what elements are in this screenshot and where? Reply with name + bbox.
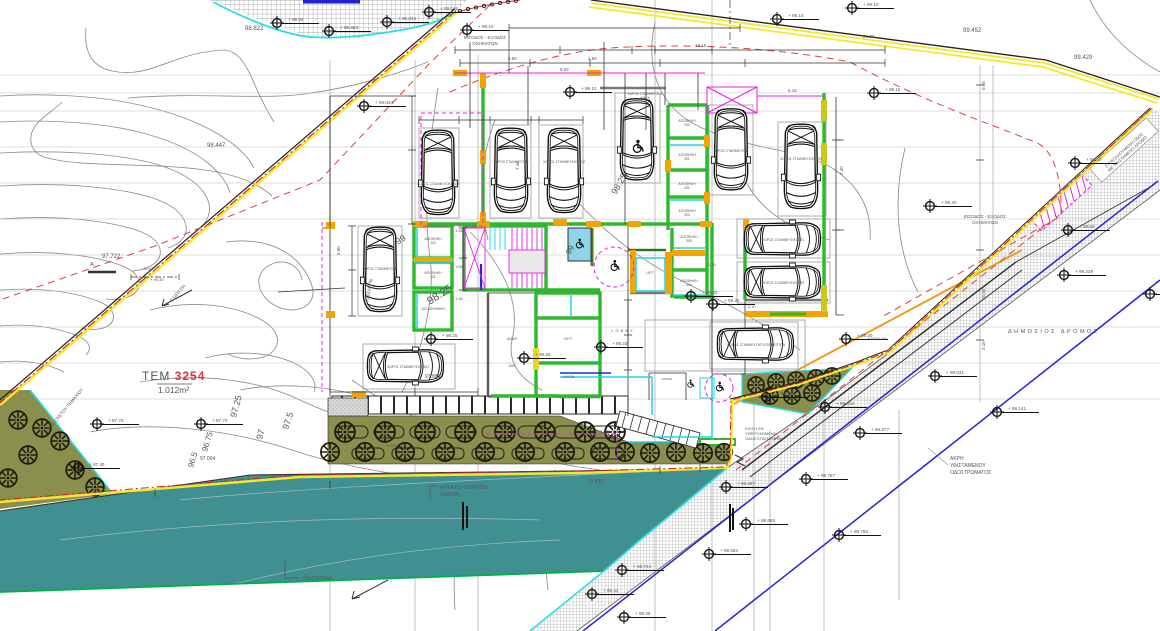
svg-text:+ 98.44: + 98.44 <box>603 588 619 593</box>
svg-text:ΑΜΕΑ: ΑΜΕΑ <box>640 96 650 100</box>
svg-text:+ 98.750: + 98.750 <box>850 529 868 534</box>
svg-text:1.60: 1.60 <box>588 56 597 61</box>
svg-text:99.452: 99.452 <box>963 28 982 34</box>
svg-text:+ 99.20: + 99.20 <box>724 298 740 303</box>
svg-text:102 ΑΠΟΘΗΚΗ: 102 ΑΠΟΘΗΚΗ <box>421 307 445 311</box>
svg-text:97.886: 97.886 <box>425 374 441 380</box>
svg-text:ΥΔΑΤΩΝ: ΥΔΑΤΩΝ <box>440 492 460 498</box>
svg-text:ΥΦΙΣΤΑΜΕΝΟΥ: ΥΦΙΣΤΑΜΕΝΟΥ <box>950 463 986 469</box>
svg-text:ΧΩΡΟΣ ΣΤΑΘΜΕΥΣΗΣ 102: ΧΩΡΟΣ ΣΤΑΘΜΕΥΣΗΣ 102 <box>417 182 459 186</box>
svg-text:ΧΩΡΟΣ ΣΤΑΘΜΕΥΣΗΣ 202: ΧΩΡΟΣ ΣΤΑΘΜΕΥΣΗΣ 202 <box>543 160 585 164</box>
svg-text:ΥΔΑΤΟΡΕΜΑ: ΥΔΑΤΟΡΕΜΑ <box>302 576 333 582</box>
svg-text:+ 99.787: + 99.787 <box>817 473 835 478</box>
svg-text:0.45: 0.45 <box>981 81 986 90</box>
svg-text:5.02: 5.02 <box>560 67 569 72</box>
svg-text:ΧΩΡΟΣ ΣΤΑΘΜΕΥΣΗΣ: ΧΩΡΟΣ ΣΤΑΘΜΕΥΣΗΣ <box>362 267 397 271</box>
svg-text:ΑΚΡΗ: ΑΚΡΗ <box>950 456 964 462</box>
svg-text:7.46: 7.46 <box>515 161 520 170</box>
svg-text:ΧΩΡΟΣ ΣΤΑΘΜΕΥΣΗΣ 203: ΧΩΡΟΣ ΣΤΑΘΜΕΥΣΗΣ 203 <box>780 157 822 161</box>
svg-text:101: 101 <box>430 275 436 279</box>
svg-text:97.004: 97.004 <box>200 456 216 462</box>
svg-text:3.10: 3.10 <box>981 341 986 350</box>
svg-text:ΧΩΡΟΣ ΣΤΑΘΜΕΥΣΗΣ 301: ΧΩΡΟΣ ΣΤΑΘΜΕΥΣΗΣ 301 <box>762 238 804 242</box>
svg-text:ΑΧΕ: ΑΧΕ <box>509 364 517 368</box>
svg-text:+ 99.046: + 99.046 <box>440 6 458 11</box>
svg-text:+ 97.70: + 97.70 <box>212 418 228 423</box>
svg-text:301: 301 <box>684 157 690 161</box>
svg-text:5.00: 5.00 <box>336 246 341 255</box>
svg-text:ΤΕΜ 3254: ΤΕΜ 3254 <box>142 369 205 383</box>
svg-text:ΦΡΕΑΤΙΟ ΟΜΒΡΙΩΝ: ΦΡΕΑΤΙΟ ΟΜΒΡΙΩΝ <box>440 485 487 491</box>
svg-text:1.45: 1.45 <box>455 296 464 301</box>
svg-text:24.07: 24.07 <box>863 34 875 39</box>
svg-text:A: A <box>90 262 94 268</box>
svg-text:+ 99.012: + 99.012 <box>836 401 854 406</box>
svg-text:+ 98.94: + 98.94 <box>288 17 304 22</box>
svg-text:303: 303 <box>684 213 690 217</box>
svg-text:+ 99.044: + 99.044 <box>375 100 393 105</box>
svg-text:ΟΧΗΜΑΤΩΝ: ΟΧΗΜΑΤΩΝ <box>972 220 997 225</box>
svg-text:ΚΛΙΣΗ 7%: ΚΛΙΣΗ 7% <box>378 435 397 440</box>
svg-text:ΥΛΙΚΩΝ: ΥΛΙΚΩΝ <box>562 375 575 379</box>
svg-text:ΚΛΙΣΗ 5%: ΚΛΙΣΗ 5% <box>387 443 406 448</box>
svg-text:202: 202 <box>684 123 690 127</box>
svg-text:+ 98.25: + 98.25 <box>535 352 551 357</box>
svg-text:+ 99.10: + 99.10 <box>885 87 901 92</box>
svg-text:LIFT: LIFT <box>646 271 654 275</box>
svg-text:+ 99.60: + 99.60 <box>1086 157 1102 162</box>
svg-text:97.812: 97.812 <box>588 479 604 485</box>
svg-text:2.10: 2.10 <box>748 304 757 309</box>
svg-text:ΟΔΟΣ ΕΠΙΣΚΕΠΤΩΝ: ΟΔΟΣ ΕΠΙΣΚΕΠΤΩΝ <box>745 436 783 441</box>
svg-text:+ 98.584: + 98.584 <box>720 548 738 553</box>
svg-text:ΔΙΑΔΡ: ΔΙΑΔΡ <box>507 337 518 341</box>
svg-text:99.429: 99.429 <box>1074 55 1093 61</box>
svg-text:1.50: 1.50 <box>455 264 464 269</box>
svg-text:98.822: 98.822 <box>245 26 264 32</box>
svg-text:305: 305 <box>686 239 692 243</box>
svg-text:+ 98.687: + 98.687 <box>737 481 755 486</box>
svg-text:304: 304 <box>686 283 692 287</box>
svg-text:+ 98.655: + 98.655 <box>757 518 775 523</box>
svg-text:+ 99.10: + 99.10 <box>788 13 804 18</box>
svg-text:98.447: 98.447 <box>207 143 226 149</box>
svg-text:ΧΩΡΟΣ ΣΤΑΘΜΕΥΣΗΣ ΕΠΙΣΚΕΠΤΩΝ: ΧΩΡΟΣ ΣΤΑΘΜΕΥΣΗΣ ΕΠΙΣΚΕΠΤΩΝ <box>727 343 786 347</box>
svg-text:ΟΧΗΜΑΤΩΝ: ΟΧΗΜΑΤΩΝ <box>472 41 497 46</box>
svg-text:ΕΙΣΟΔΟΣ - ΕΞΟΔΟΣ: ΕΙΣΟΔΟΣ - ΕΞΟΔΟΣ <box>464 35 506 40</box>
svg-text:102: 102 <box>430 241 436 245</box>
svg-text:ΧΩΡΟΣ ΣΤΑΘΜΕΥΣΗΣ: ΧΩΡΟΣ ΣΤΑΘΜΕΥΣΗΣ <box>493 160 528 164</box>
svg-text:+ 99.031: + 99.031 <box>946 370 964 375</box>
svg-text:1.65: 1.65 <box>455 228 464 233</box>
svg-text:2.10: 2.10 <box>708 262 717 267</box>
svg-text:ΧΩΡΟΣ ΣΤΑΘΜΕΥΣΗΣ 303: ΧΩΡΟΣ ΣΤΑΘΜΕΥΣΗΣ 303 <box>762 281 804 285</box>
svg-text:+ 97.40: + 97.40 <box>89 462 105 467</box>
svg-text:+ 99.137: + 99.137 <box>777 391 795 396</box>
svg-text:+ 99.10: + 99.10 <box>581 86 597 91</box>
svg-text:+ 99.10: + 99.10 <box>863 2 879 7</box>
svg-text:ΟΔΟΣΤΡΩΜΑΤΟΣ: ΟΔΟΣΤΡΩΜΑΤΟΣ <box>950 470 991 476</box>
svg-text:+ 99.23: + 99.23 <box>612 341 628 346</box>
svg-text:+ 99.044: + 99.044 <box>398 16 416 21</box>
svg-text:+ 98.48: + 98.48 <box>635 611 651 616</box>
svg-text:6.15: 6.15 <box>788 88 797 93</box>
svg-text:+ 98.877: + 98.877 <box>871 427 889 432</box>
svg-text:+ 99.20: + 99.20 <box>702 290 718 295</box>
svg-text:ΧΩΡΟΣ ΣΤΑΘΜΕΥΣΗΣ 101: ΧΩΡΟΣ ΣΤΑΘΜΕΥΣΗΣ 101 <box>387 365 429 369</box>
svg-text:+ 99.30: + 99.30 <box>150 277 164 282</box>
svg-text:97.722: 97.722 <box>102 254 121 260</box>
svg-text:ΕΙΣΟΔΟΣ - ΕΞΟΔΟΣ: ΕΙΣΟΔΟΣ - ΕΞΟΔΟΣ <box>964 214 1006 219</box>
svg-text:ΛΟΥΤ: ΛΟΥΤ <box>563 337 572 341</box>
svg-text:+ 98.724: + 98.724 <box>633 564 651 569</box>
svg-text:5.80: 5.80 <box>508 56 517 61</box>
svg-text:ΚΛΙΣΗ 5%: ΚΛΙΣΗ 5% <box>600 429 619 434</box>
svg-text:+ 99.60: + 99.60 <box>1079 224 1095 229</box>
svg-text:+ 99.141: + 99.141 <box>1008 406 1026 411</box>
svg-text:+ 99.239: + 99.239 <box>1075 269 1093 274</box>
svg-text:+ 97.70: + 97.70 <box>108 418 124 423</box>
svg-text:ΔΗΜΟΣΙΟΣ ΔΡΟΜΟΣ: ΔΗΜΟΣΙΟΣ ΔΡΟΜΟΣ <box>1008 329 1100 335</box>
svg-text:+ 99.20: + 99.20 <box>941 200 957 205</box>
svg-text:+ 98.25: + 98.25 <box>442 333 458 338</box>
svg-text:18.10: 18.10 <box>695 43 707 48</box>
svg-text:7.40: 7.40 <box>839 166 844 175</box>
svg-text:+ 99.10: + 99.10 <box>478 24 494 29</box>
svg-text:15.50: 15.50 <box>981 288 986 300</box>
svg-text:ΧΩΡΟΣ ΣΤΑΘΜΕΥΣΗΣ: ΧΩΡΟΣ ΣΤΑΘΜΕΥΣΗΣ <box>713 149 748 153</box>
svg-text:40.87: 40.87 <box>143 266 154 271</box>
svg-text:ΕΠΕΝΔ: ΕΠΕΝΔ <box>662 377 672 381</box>
svg-text:LOBBY: LOBBY <box>611 328 634 333</box>
svg-text:ΚΛΙΣΗ 3%: ΚΛΙΣΗ 3% <box>868 336 887 341</box>
svg-text:302: 302 <box>684 186 690 190</box>
svg-text:1.012m²: 1.012m² <box>158 385 189 395</box>
svg-text:+ 98.953: + 98.953 <box>340 25 358 30</box>
